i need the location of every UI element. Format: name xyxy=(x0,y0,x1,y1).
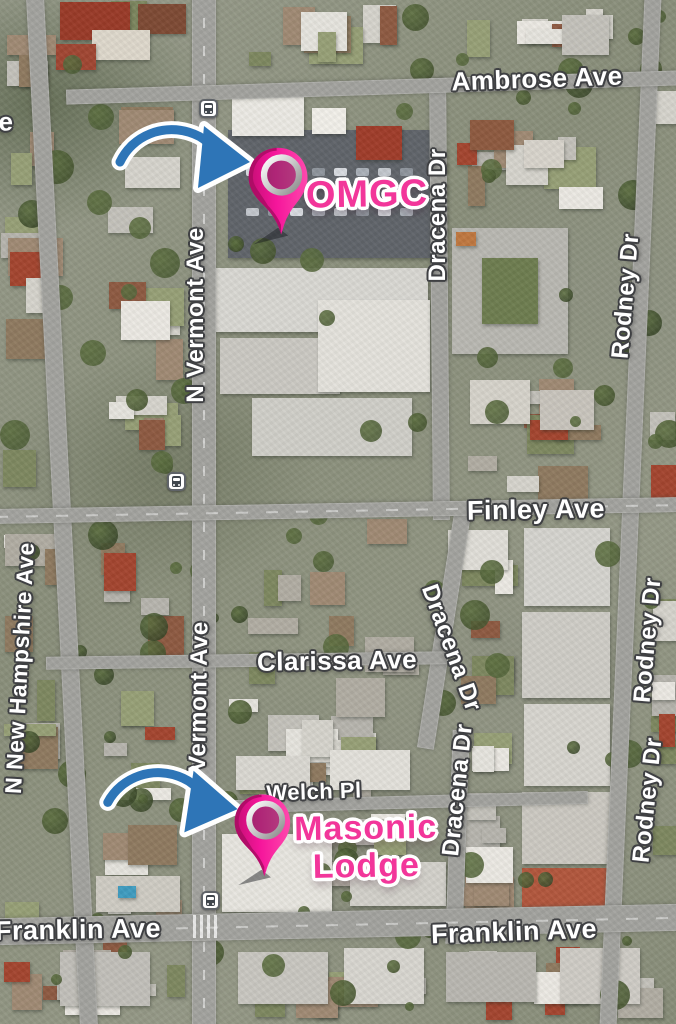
building xyxy=(278,575,301,601)
building xyxy=(522,868,610,908)
building xyxy=(92,30,150,60)
building xyxy=(356,126,402,160)
building xyxy=(4,962,30,982)
street-label-n-vermont-ave-top: N Vermont Ave xyxy=(182,227,210,402)
building xyxy=(486,1002,512,1020)
tree xyxy=(51,974,62,985)
building xyxy=(482,828,506,843)
building xyxy=(121,691,154,726)
tree xyxy=(595,541,621,567)
building xyxy=(482,258,538,324)
tree xyxy=(129,217,151,239)
tree xyxy=(570,416,581,427)
pin-label-omgc: OMGC xyxy=(306,172,429,217)
building xyxy=(60,952,150,1006)
tree xyxy=(228,700,252,724)
tree xyxy=(170,562,182,574)
tree xyxy=(87,190,112,215)
building xyxy=(559,187,603,209)
tree xyxy=(559,288,573,302)
satellite-map: Ambrose Ave N Vermont Ave Dracena Dr Rod… xyxy=(0,0,676,1024)
transit-station-icon xyxy=(167,472,186,491)
tree xyxy=(341,891,352,902)
building xyxy=(11,153,32,185)
building xyxy=(524,528,610,606)
tree xyxy=(408,413,427,432)
building xyxy=(524,140,564,168)
tree xyxy=(121,284,137,300)
tree xyxy=(402,4,429,31)
tree xyxy=(456,53,469,66)
building xyxy=(232,96,304,136)
tree xyxy=(319,310,335,326)
tree xyxy=(88,520,118,550)
building xyxy=(139,420,165,450)
tree xyxy=(80,340,106,366)
tree xyxy=(480,560,504,584)
tree xyxy=(150,248,180,278)
tree xyxy=(482,169,496,183)
building xyxy=(248,618,298,634)
building xyxy=(37,680,55,721)
tree xyxy=(42,808,68,834)
building xyxy=(125,157,180,188)
tree xyxy=(553,358,573,378)
building xyxy=(145,727,175,740)
transit-station-icon xyxy=(201,891,220,910)
street-label-franklin-ave-east: Franklin Ave xyxy=(430,914,597,951)
building xyxy=(526,29,563,44)
tree xyxy=(126,389,148,411)
tree xyxy=(63,55,82,74)
tree xyxy=(140,613,168,641)
building xyxy=(310,572,345,605)
street-label-clarissa-ave: Clarissa Ave xyxy=(257,644,418,678)
street-label-finley-ave: Finley Ave xyxy=(467,493,606,526)
building xyxy=(96,876,180,912)
tree xyxy=(485,653,510,678)
street-label-n-vermont-ave-mid: N Vermont Ave xyxy=(183,621,214,797)
tree xyxy=(518,872,534,888)
building xyxy=(312,108,346,134)
street-label-fragment: e xyxy=(0,107,13,138)
tree xyxy=(568,102,581,115)
building xyxy=(344,948,424,1004)
tree xyxy=(538,872,553,887)
building xyxy=(467,20,490,57)
tree xyxy=(231,606,248,623)
bus-glyph xyxy=(172,476,181,487)
building xyxy=(128,825,177,865)
tree xyxy=(477,347,498,368)
building xyxy=(562,15,609,55)
tree xyxy=(405,1002,414,1011)
street-label-ambrose-ave: Ambrose Ave xyxy=(451,61,623,98)
tree xyxy=(460,600,490,630)
crosswalk xyxy=(193,915,218,938)
building xyxy=(540,390,594,430)
building xyxy=(522,612,610,698)
tree xyxy=(594,385,615,406)
tree xyxy=(231,239,243,251)
street-label-franklin-ave-west: Franklin Ave xyxy=(0,913,161,947)
tree xyxy=(396,103,413,120)
building xyxy=(252,398,412,456)
tree xyxy=(485,400,509,424)
transit-station-icon xyxy=(199,99,218,118)
tree xyxy=(622,936,632,946)
building xyxy=(474,884,509,906)
tree xyxy=(138,794,148,804)
tree xyxy=(330,980,356,1006)
tree xyxy=(118,945,132,959)
building xyxy=(367,519,407,544)
bus-glyph xyxy=(204,103,213,114)
building xyxy=(119,110,174,144)
tree xyxy=(286,528,302,544)
tree xyxy=(300,248,324,272)
building xyxy=(104,743,127,756)
building xyxy=(470,120,514,150)
building xyxy=(380,6,397,45)
building xyxy=(249,52,271,66)
tree xyxy=(104,731,116,743)
tree xyxy=(360,420,382,442)
pin-label-masonic-lodge: Masonic Lodge xyxy=(273,807,459,886)
building xyxy=(318,32,336,62)
tree xyxy=(648,434,663,449)
building xyxy=(167,965,185,997)
building xyxy=(104,553,136,591)
bus-glyph xyxy=(206,895,215,906)
tree xyxy=(0,420,30,450)
building xyxy=(446,952,536,1002)
building xyxy=(164,415,181,446)
tree xyxy=(151,451,173,473)
tree xyxy=(387,960,400,973)
tree xyxy=(313,551,334,572)
building xyxy=(118,886,136,898)
tree xyxy=(88,104,114,130)
building xyxy=(468,456,497,471)
building xyxy=(3,450,36,487)
building xyxy=(507,476,539,492)
building xyxy=(318,300,430,392)
building xyxy=(121,301,170,340)
tree xyxy=(567,741,580,754)
building xyxy=(302,720,333,757)
building xyxy=(336,678,385,717)
tree xyxy=(262,954,285,977)
tree xyxy=(109,779,137,807)
building xyxy=(456,232,476,246)
tree xyxy=(169,798,193,822)
building xyxy=(156,339,183,380)
